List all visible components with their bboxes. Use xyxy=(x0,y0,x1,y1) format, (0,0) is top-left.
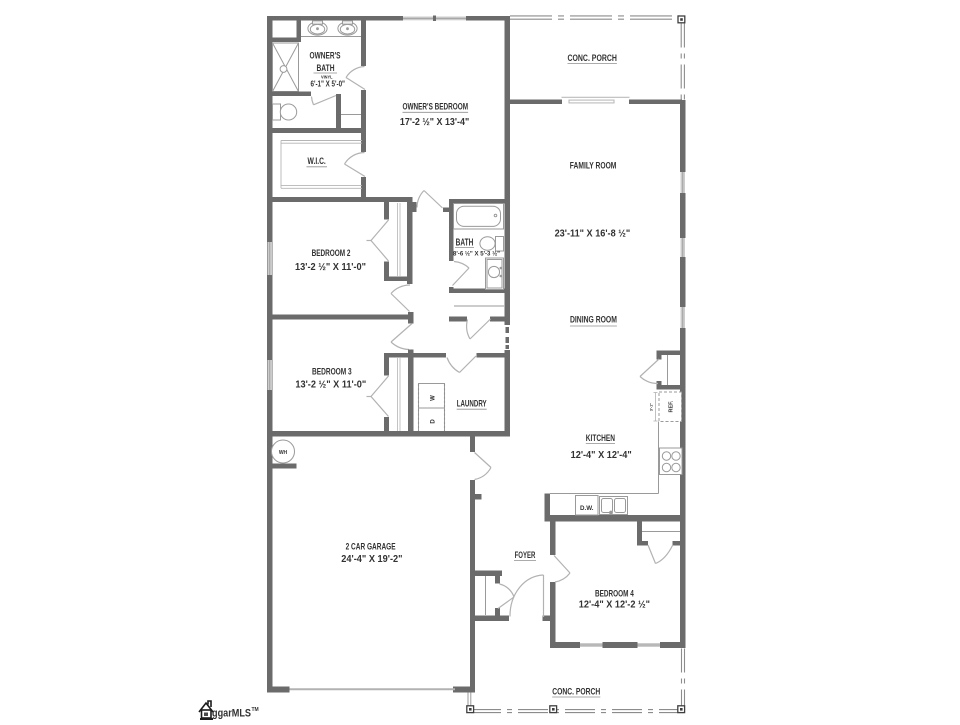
svg-text:CONC. PORCH: CONC. PORCH xyxy=(552,686,600,696)
svg-text:3'-1": 3'-1" xyxy=(650,403,654,411)
svg-text:LAUNDRY: LAUNDRY xyxy=(457,399,487,409)
svg-text:W.I.C.: W.I.C. xyxy=(308,156,326,166)
svg-text:BATH: BATH xyxy=(456,238,474,249)
svg-text:OWNER'S: OWNER'S xyxy=(310,51,341,61)
svg-text:13'-2 ½" X 11'-0": 13'-2 ½" X 11'-0" xyxy=(295,261,366,273)
svg-text:BEDROOM 4: BEDROOM 4 xyxy=(595,588,634,598)
svg-text:TM: TM xyxy=(252,707,259,713)
svg-text:BATH: BATH xyxy=(317,63,335,73)
svg-text:WH: WH xyxy=(279,450,288,456)
svg-text:6'-1" X 5'-0": 6'-1" X 5'-0" xyxy=(311,79,346,89)
svg-text:12'-4" X 12'-2 ½": 12'-4" X 12'-2 ½" xyxy=(579,599,650,611)
svg-text:OWNER'S BEDROOM: OWNER'S BEDROOM xyxy=(403,102,469,112)
svg-text:ggarMLS: ggarMLS xyxy=(212,708,251,720)
svg-text:KITCHEN: KITCHEN xyxy=(586,433,615,443)
svg-text:D.W.: D.W. xyxy=(580,506,594,512)
svg-text:13'-2 ½" X 11'-0": 13'-2 ½" X 11'-0" xyxy=(295,379,366,391)
svg-text:23'-11" X 16'-8 ½": 23'-11" X 16'-8 ½" xyxy=(555,228,631,240)
svg-text:24'-4" X 19'-2": 24'-4" X 19'-2" xyxy=(341,553,402,565)
svg-text:DINING ROOM: DINING ROOM xyxy=(570,315,617,325)
svg-text:BEDROOM 2: BEDROOM 2 xyxy=(312,248,351,258)
svg-text:2 CAR GARAGE: 2 CAR GARAGE xyxy=(346,541,396,551)
svg-text:12'-4" X 12'-4": 12'-4" X 12'-4" xyxy=(571,449,632,461)
svg-text:REF.: REF. xyxy=(669,400,675,412)
svg-text:8'-6 ½" X 5'-3 ½": 8'-6 ½" X 5'-3 ½" xyxy=(453,251,500,258)
svg-text:FAMILY ROOM: FAMILY ROOM xyxy=(570,160,617,170)
svg-text:D: D xyxy=(431,419,437,424)
svg-text:BEDROOM 3: BEDROOM 3 xyxy=(312,366,352,376)
svg-text:W: W xyxy=(431,395,437,401)
svg-text:17'-2 ½" X 13'-4": 17'-2 ½" X 13'-4" xyxy=(400,116,469,128)
svg-text:CONC. PORCH: CONC. PORCH xyxy=(568,53,617,63)
svg-text:FOYER: FOYER xyxy=(515,550,536,560)
